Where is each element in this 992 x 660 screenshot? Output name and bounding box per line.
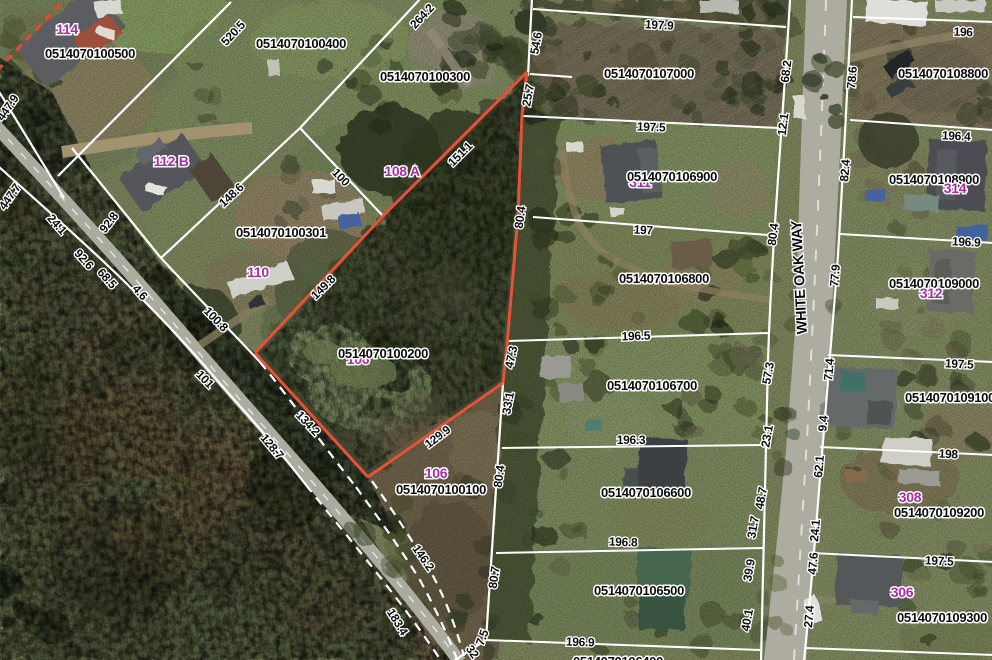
svg-text:0514070107000: 0514070107000 xyxy=(604,66,694,81)
svg-text:308: 308 xyxy=(899,489,922,505)
svg-text:196.4: 196.4 xyxy=(942,128,972,144)
svg-text:197.5: 197.5 xyxy=(945,356,975,372)
svg-text:314: 314 xyxy=(944,180,967,196)
svg-text:196: 196 xyxy=(953,25,973,40)
svg-text:0514070100200: 0514070100200 xyxy=(338,346,428,361)
svg-text:197.5: 197.5 xyxy=(637,120,667,135)
svg-text:197.5: 197.5 xyxy=(925,553,955,569)
svg-text:106: 106 xyxy=(425,465,448,481)
svg-text:0514070108800: 0514070108800 xyxy=(898,66,988,81)
svg-text:196.3: 196.3 xyxy=(617,433,646,447)
svg-text:27.4: 27.4 xyxy=(801,604,817,628)
svg-text:306: 306 xyxy=(891,584,914,600)
svg-text:198: 198 xyxy=(938,447,958,462)
svg-text:196.9: 196.9 xyxy=(952,234,982,250)
svg-text:9.4: 9.4 xyxy=(815,415,830,433)
svg-text:312: 312 xyxy=(920,285,943,301)
svg-text:0514070106500: 0514070106500 xyxy=(594,583,684,598)
svg-text:108 A: 108 A xyxy=(384,163,420,179)
svg-text:0514070100300: 0514070100300 xyxy=(380,69,470,84)
svg-text:82.4: 82.4 xyxy=(837,158,853,182)
svg-text:0514070100100: 0514070100100 xyxy=(396,482,486,497)
svg-text:0514070109300: 0514070109300 xyxy=(897,610,987,625)
svg-text:77.9: 77.9 xyxy=(827,263,843,287)
svg-text:114: 114 xyxy=(56,21,78,37)
svg-text:78.6: 78.6 xyxy=(844,65,860,89)
svg-text:112 B: 112 B xyxy=(153,153,188,169)
svg-text:0514070106800: 0514070106800 xyxy=(619,271,709,286)
svg-text:0514070109100: 0514070109100 xyxy=(905,390,992,405)
svg-text:0514070106900: 0514070106900 xyxy=(627,169,717,184)
svg-text:0514070106700: 0514070106700 xyxy=(607,378,697,393)
svg-text:24.1: 24.1 xyxy=(807,518,823,542)
svg-text:196.5: 196.5 xyxy=(621,328,651,343)
svg-text:0514070100301: 0514070100301 xyxy=(236,225,326,240)
svg-text:80.4: 80.4 xyxy=(765,222,782,246)
svg-text:0514070100500: 0514070100500 xyxy=(45,46,135,61)
svg-text:0514070106400: 0514070106400 xyxy=(573,654,663,660)
svg-text:12.1: 12.1 xyxy=(775,112,792,136)
svg-text:196.8: 196.8 xyxy=(609,535,639,550)
svg-text:62.1: 62.1 xyxy=(811,454,827,478)
svg-text:71.4: 71.4 xyxy=(821,357,837,381)
svg-text:110: 110 xyxy=(247,264,269,280)
svg-text:196.9: 196.9 xyxy=(566,635,596,650)
svg-text:0514070100400: 0514070100400 xyxy=(256,36,346,51)
svg-text:68.2: 68.2 xyxy=(778,59,795,83)
svg-text:197.9: 197.9 xyxy=(645,17,675,33)
svg-text:197: 197 xyxy=(633,223,653,238)
svg-text:0514070109200: 0514070109200 xyxy=(894,505,984,520)
svg-text:0514070106600: 0514070106600 xyxy=(601,485,691,500)
svg-text:47.6: 47.6 xyxy=(805,551,821,575)
